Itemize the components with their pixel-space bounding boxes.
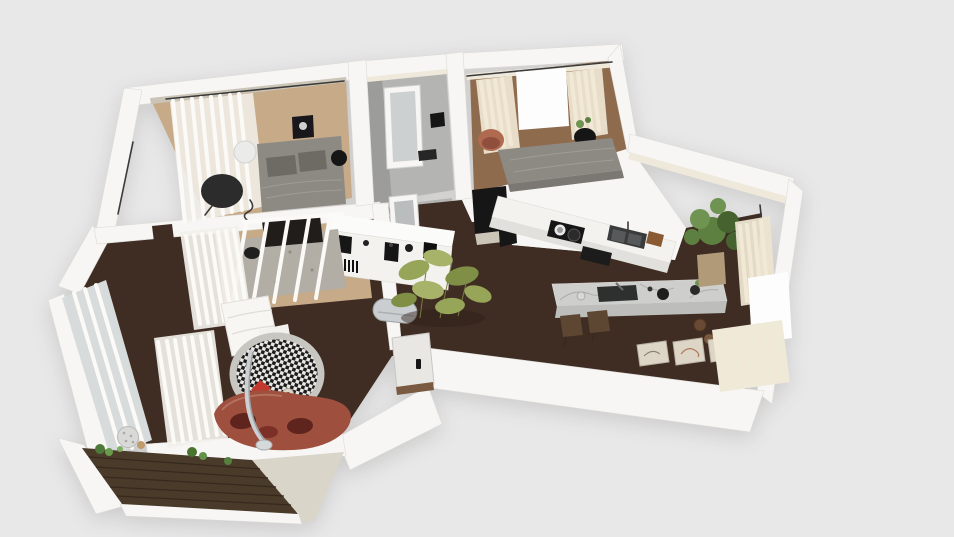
- bed-pillow[interactable]: [266, 155, 297, 177]
- pot-white-inner: [557, 227, 563, 233]
- island-vase[interactable]: [690, 285, 700, 295]
- entrance-door[interactable]: [392, 333, 434, 389]
- island-bowl[interactable]: [577, 292, 585, 300]
- balcony-plant: [224, 457, 232, 465]
- render-stage: [0, 0, 954, 537]
- plant-foliage: [710, 198, 726, 214]
- doorway-opening[interactable]: [152, 224, 175, 250]
- floor-pot[interactable]: [694, 319, 706, 331]
- rug-speckle: [289, 251, 292, 254]
- plant-foliage: [684, 229, 700, 245]
- sphere-dot: [132, 441, 135, 444]
- pot-dark[interactable]: [568, 229, 580, 241]
- plant-pot[interactable]: [697, 252, 726, 287]
- chair-plant-leaf: [576, 120, 584, 128]
- decor-lamp-top: [389, 243, 393, 247]
- chair-plant-leaf: [585, 117, 591, 123]
- plant-foliage: [690, 209, 710, 229]
- rug-speckle: [311, 269, 314, 272]
- sphere-dot: [130, 435, 133, 438]
- floor-tray[interactable]: [418, 149, 437, 161]
- sphere-side-table[interactable]: [118, 427, 139, 448]
- island-sink[interactable]: [597, 285, 638, 302]
- decor-vase[interactable]: [405, 244, 413, 252]
- sphere-dot: [125, 440, 128, 443]
- window-panel: [516, 68, 569, 130]
- sphere-dot: [123, 432, 126, 435]
- island-plate[interactable]: [657, 288, 669, 300]
- black-stool[interactable]: [331, 150, 347, 166]
- side-cup[interactable]: [137, 441, 145, 449]
- decor-vase[interactable]: [363, 240, 369, 246]
- drum-side-table[interactable]: [234, 141, 256, 163]
- dining-chair[interactable]: [244, 247, 260, 259]
- bar-stool[interactable]: [587, 310, 610, 333]
- balcony-plant[interactable]: [187, 447, 197, 457]
- balcony-plant[interactable]: [95, 444, 105, 454]
- art-frame[interactable]: [673, 338, 705, 365]
- round-chair-dark[interactable]: [201, 174, 243, 208]
- balcony-plant: [117, 446, 123, 452]
- bar-stool[interactable]: [560, 314, 583, 337]
- art-frame[interactable]: [637, 341, 669, 366]
- bed-pillow[interactable]: [298, 150, 327, 172]
- door-handle[interactable]: [416, 359, 421, 369]
- floor-plan-canvas: [0, 0, 954, 537]
- arc-lamp-shade: [256, 440, 272, 450]
- balcony-plant: [105, 448, 113, 456]
- moon-graphic: [299, 122, 307, 130]
- wall-speaker[interactable]: [430, 112, 445, 128]
- armchair-seat: [482, 137, 500, 149]
- mirror-glass: [390, 91, 418, 162]
- balcony-plant: [199, 452, 207, 460]
- island-bottle[interactable]: [648, 287, 653, 292]
